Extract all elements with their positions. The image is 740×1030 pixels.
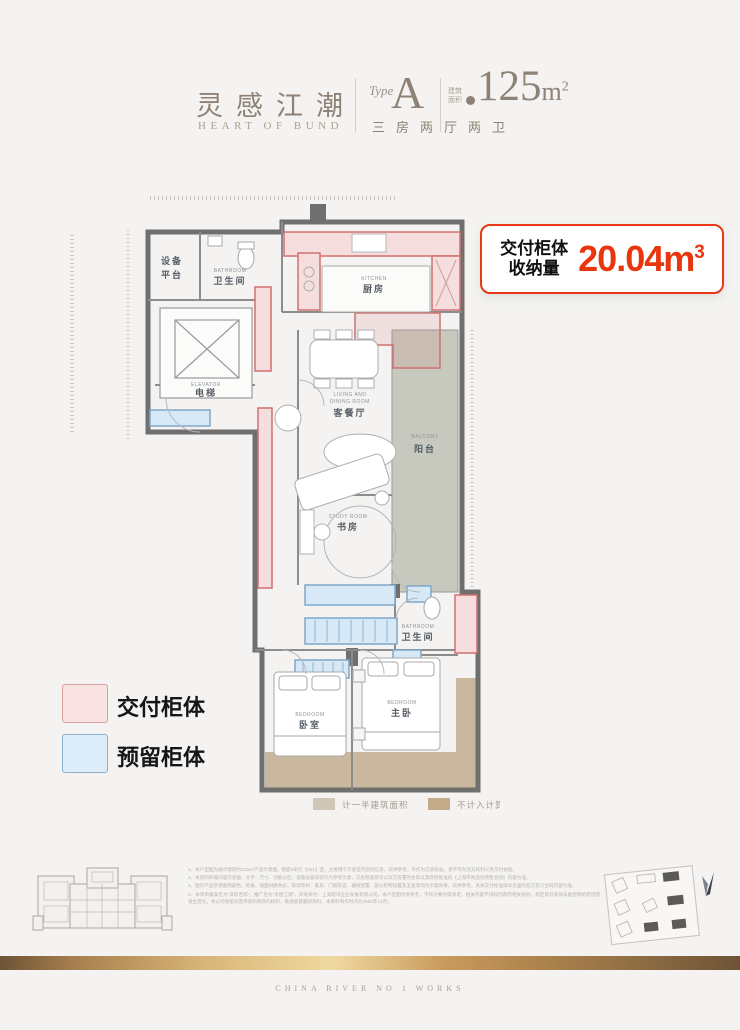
area-legend-half-label: 计一半建筑面积 bbox=[342, 800, 409, 810]
room-label-bath1-cn: 卫生间 bbox=[213, 275, 246, 286]
legend-reserved-swatch bbox=[62, 734, 108, 773]
type-label: Type bbox=[369, 83, 393, 99]
logo-chinese: 灵感江潮 bbox=[196, 84, 356, 123]
room-label-study-cn: 书房 bbox=[337, 521, 359, 532]
tan-zone-right bbox=[456, 678, 478, 754]
room-label-bed1-en: BEDROOM bbox=[295, 712, 324, 718]
room-label-bed2-en: BEDROOM bbox=[387, 700, 416, 706]
disclaimer-notes: 1、本户型图为展示建筑约125m²产品示意图，鹤庭8单元【601】室，主要用于示… bbox=[188, 866, 600, 906]
site-plan bbox=[598, 856, 720, 959]
room-label-bath1-en: BATHROOM bbox=[214, 268, 247, 274]
note-line-2: 2、本资料所载内容示意图、文字、尺寸、功能分区、设施设备等仅作为参考示意，交房标… bbox=[188, 874, 600, 881]
area-legend-excluded-label: 不计入计算面积 bbox=[457, 800, 500, 810]
type-value: A bbox=[391, 66, 424, 119]
tan-zone-bottom bbox=[265, 752, 478, 788]
note-line-3: 3、图示产品享受图例颜色、地板、墙面材质色彩、软装饰材、家具、门窗形态、器材配置… bbox=[188, 882, 600, 889]
floor-plan-svg: 设备 平台 BATHROOM 卫生间 ELEVATOR 电梯 KITCHEN 厨… bbox=[60, 180, 500, 830]
storage-badge-label-line2: 收纳量 bbox=[500, 259, 568, 279]
wall-block-flue bbox=[310, 204, 326, 222]
legend-delivered-swatch bbox=[62, 684, 108, 723]
room-label-equipment-2: 平台 bbox=[161, 269, 183, 280]
layout-description: 三房两厅两卫 bbox=[372, 117, 516, 136]
room-label-balcony-cn: 阳台 bbox=[414, 443, 436, 454]
dining-set bbox=[310, 330, 378, 388]
area-number: 125 bbox=[477, 63, 542, 110]
living-furniture bbox=[275, 405, 396, 511]
room-label-bed1-cn: 卧室 bbox=[299, 719, 321, 730]
area-approx-dot-icon bbox=[466, 96, 475, 105]
room-label-bath2-en: BATHROOM bbox=[402, 624, 435, 630]
area-prefix: 建筑面积 bbox=[448, 87, 464, 105]
room-label-bath2-cn: 卫生间 bbox=[401, 631, 434, 642]
header-divider-1 bbox=[355, 78, 356, 132]
note-line-4: 4、本项目备案名为“滨琅名邸”，推广名为“灵感江潮”，开发商为：上海新湾企业发展… bbox=[188, 891, 600, 905]
balcony-area bbox=[392, 330, 458, 592]
area-legend-half-swatch bbox=[313, 798, 335, 810]
room-label-living-en2: DINING ROOM bbox=[330, 399, 370, 405]
room-label-balcony-en: BALCONY bbox=[411, 434, 439, 440]
bathroom1-fixtures bbox=[208, 236, 254, 269]
logo-english: HEART OF BUND bbox=[198, 120, 343, 132]
room-label-living-en1: LIVING AND bbox=[333, 392, 366, 398]
storage-badge-label-line1: 交付柜体 bbox=[500, 239, 568, 259]
area-unit: m2 bbox=[542, 77, 569, 106]
storage-badge-value: 20.04m3 bbox=[578, 238, 704, 280]
footer-brand: CHINA RIVER NO 1 WORKS bbox=[0, 984, 740, 993]
note-line-1: 1、本户型图为展示建筑约125m²产品示意图，鹤庭8单元【601】室，主要用于示… bbox=[188, 866, 600, 873]
building-key-plan bbox=[30, 860, 175, 949]
area-legend-excluded-swatch bbox=[428, 798, 450, 810]
room-label-elevator-cn: 电梯 bbox=[195, 387, 217, 398]
storage-badge: 交付柜体 收纳量 20.04m3 bbox=[480, 224, 724, 294]
room-label-living-cn: 客餐厅 bbox=[332, 407, 366, 418]
room-label-kitchen-cn: 厨房 bbox=[363, 283, 385, 294]
storage-badge-label: 交付柜体 收纳量 bbox=[500, 239, 568, 279]
legend-delivered-label: 交付柜体 bbox=[117, 690, 205, 722]
building-key-plan-svg bbox=[30, 860, 175, 944]
room-label-bed2-cn: 主卧 bbox=[391, 707, 413, 718]
room-label-study-en: STUDY ROOM bbox=[329, 514, 368, 520]
room-label-kitchen-en: KITCHEN bbox=[361, 276, 386, 282]
legend-reserved-label: 预留柜体 bbox=[117, 740, 205, 772]
room-label-equipment-1: 设备 bbox=[161, 255, 183, 266]
floor-plan: 设备 平台 BATHROOM 卫生间 ELEVATOR 电梯 KITCHEN 厨… bbox=[60, 180, 500, 830]
site-plan-svg bbox=[598, 856, 720, 954]
area-value: 125m2 bbox=[477, 62, 569, 111]
gold-divider-bar bbox=[0, 956, 740, 970]
